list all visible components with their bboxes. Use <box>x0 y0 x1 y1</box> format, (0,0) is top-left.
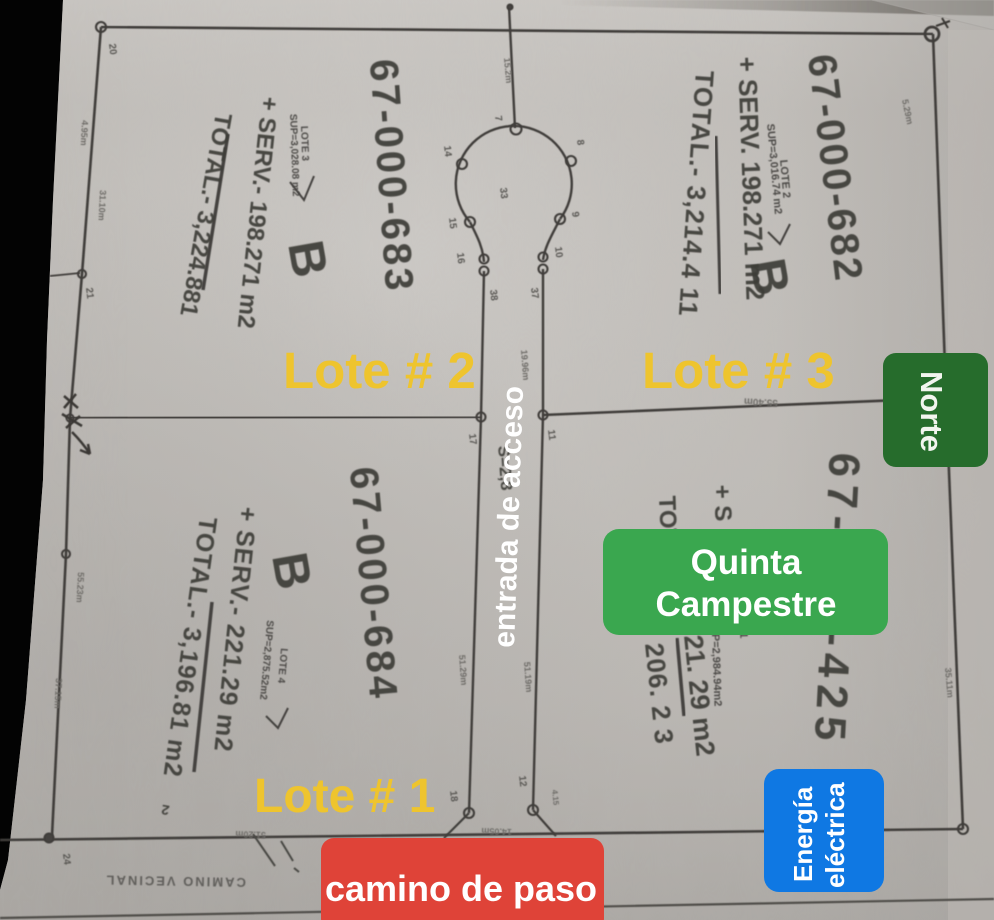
svg-text:15: 15 <box>446 217 458 230</box>
svg-text:21: 21 <box>83 287 95 300</box>
svg-text:12: 12 <box>516 775 528 788</box>
svg-text:Norte: Norte <box>914 371 949 452</box>
svg-text:51.20m: 51.20m <box>235 829 266 840</box>
svg-text:14: 14 <box>441 145 453 158</box>
svg-text:+ S: + S <box>708 484 736 522</box>
svg-text:camino de paso: camino de paso <box>325 868 597 909</box>
svg-text:31.10m: 31.10m <box>96 190 108 221</box>
svg-text:20: 20 <box>106 43 118 56</box>
svg-text:11: 11 <box>545 429 557 441</box>
svg-text:37: 37 <box>528 287 540 300</box>
svg-text:P=2,984.94m2: P=2,984.94m2 <box>709 634 724 707</box>
svg-text:38: 38 <box>487 289 499 302</box>
svg-text:14.05m: 14.05m <box>481 826 512 837</box>
svg-text:18: 18 <box>447 790 459 803</box>
svg-text:19.96m: 19.96m <box>519 349 531 380</box>
svg-text:Quinta: Quinta <box>691 543 802 582</box>
svg-text:51.19m: 51.19m <box>522 661 534 692</box>
svg-text:10: 10 <box>552 246 564 259</box>
svg-text:eléctrica: eléctrica <box>820 782 850 888</box>
svg-text:55.23m: 55.23m <box>74 572 86 603</box>
svg-text:4.95m: 4.95m <box>79 120 90 146</box>
svg-text:16: 16 <box>454 252 466 265</box>
svg-text:Energía: Energía <box>788 786 818 882</box>
svg-text:Lote # 1: Lote # 1 <box>254 770 435 823</box>
svg-text:Campestre: Campestre <box>656 585 837 624</box>
svg-text:37.15m: 37.15m <box>52 678 64 709</box>
svg-text:33: 33 <box>497 187 509 200</box>
svg-text:4.15: 4.15 <box>550 789 561 806</box>
svg-text:Lote # 3: Lote # 3 <box>642 342 835 399</box>
svg-text:Lote # 2: Lote # 2 <box>283 342 476 399</box>
svg-text:17: 17 <box>466 433 478 446</box>
svg-text:CAMINO VECINAL: CAMINO VECINAL <box>104 873 246 890</box>
svg-text:51.29m: 51.29m <box>457 654 469 685</box>
svg-text:24: 24 <box>60 853 72 866</box>
